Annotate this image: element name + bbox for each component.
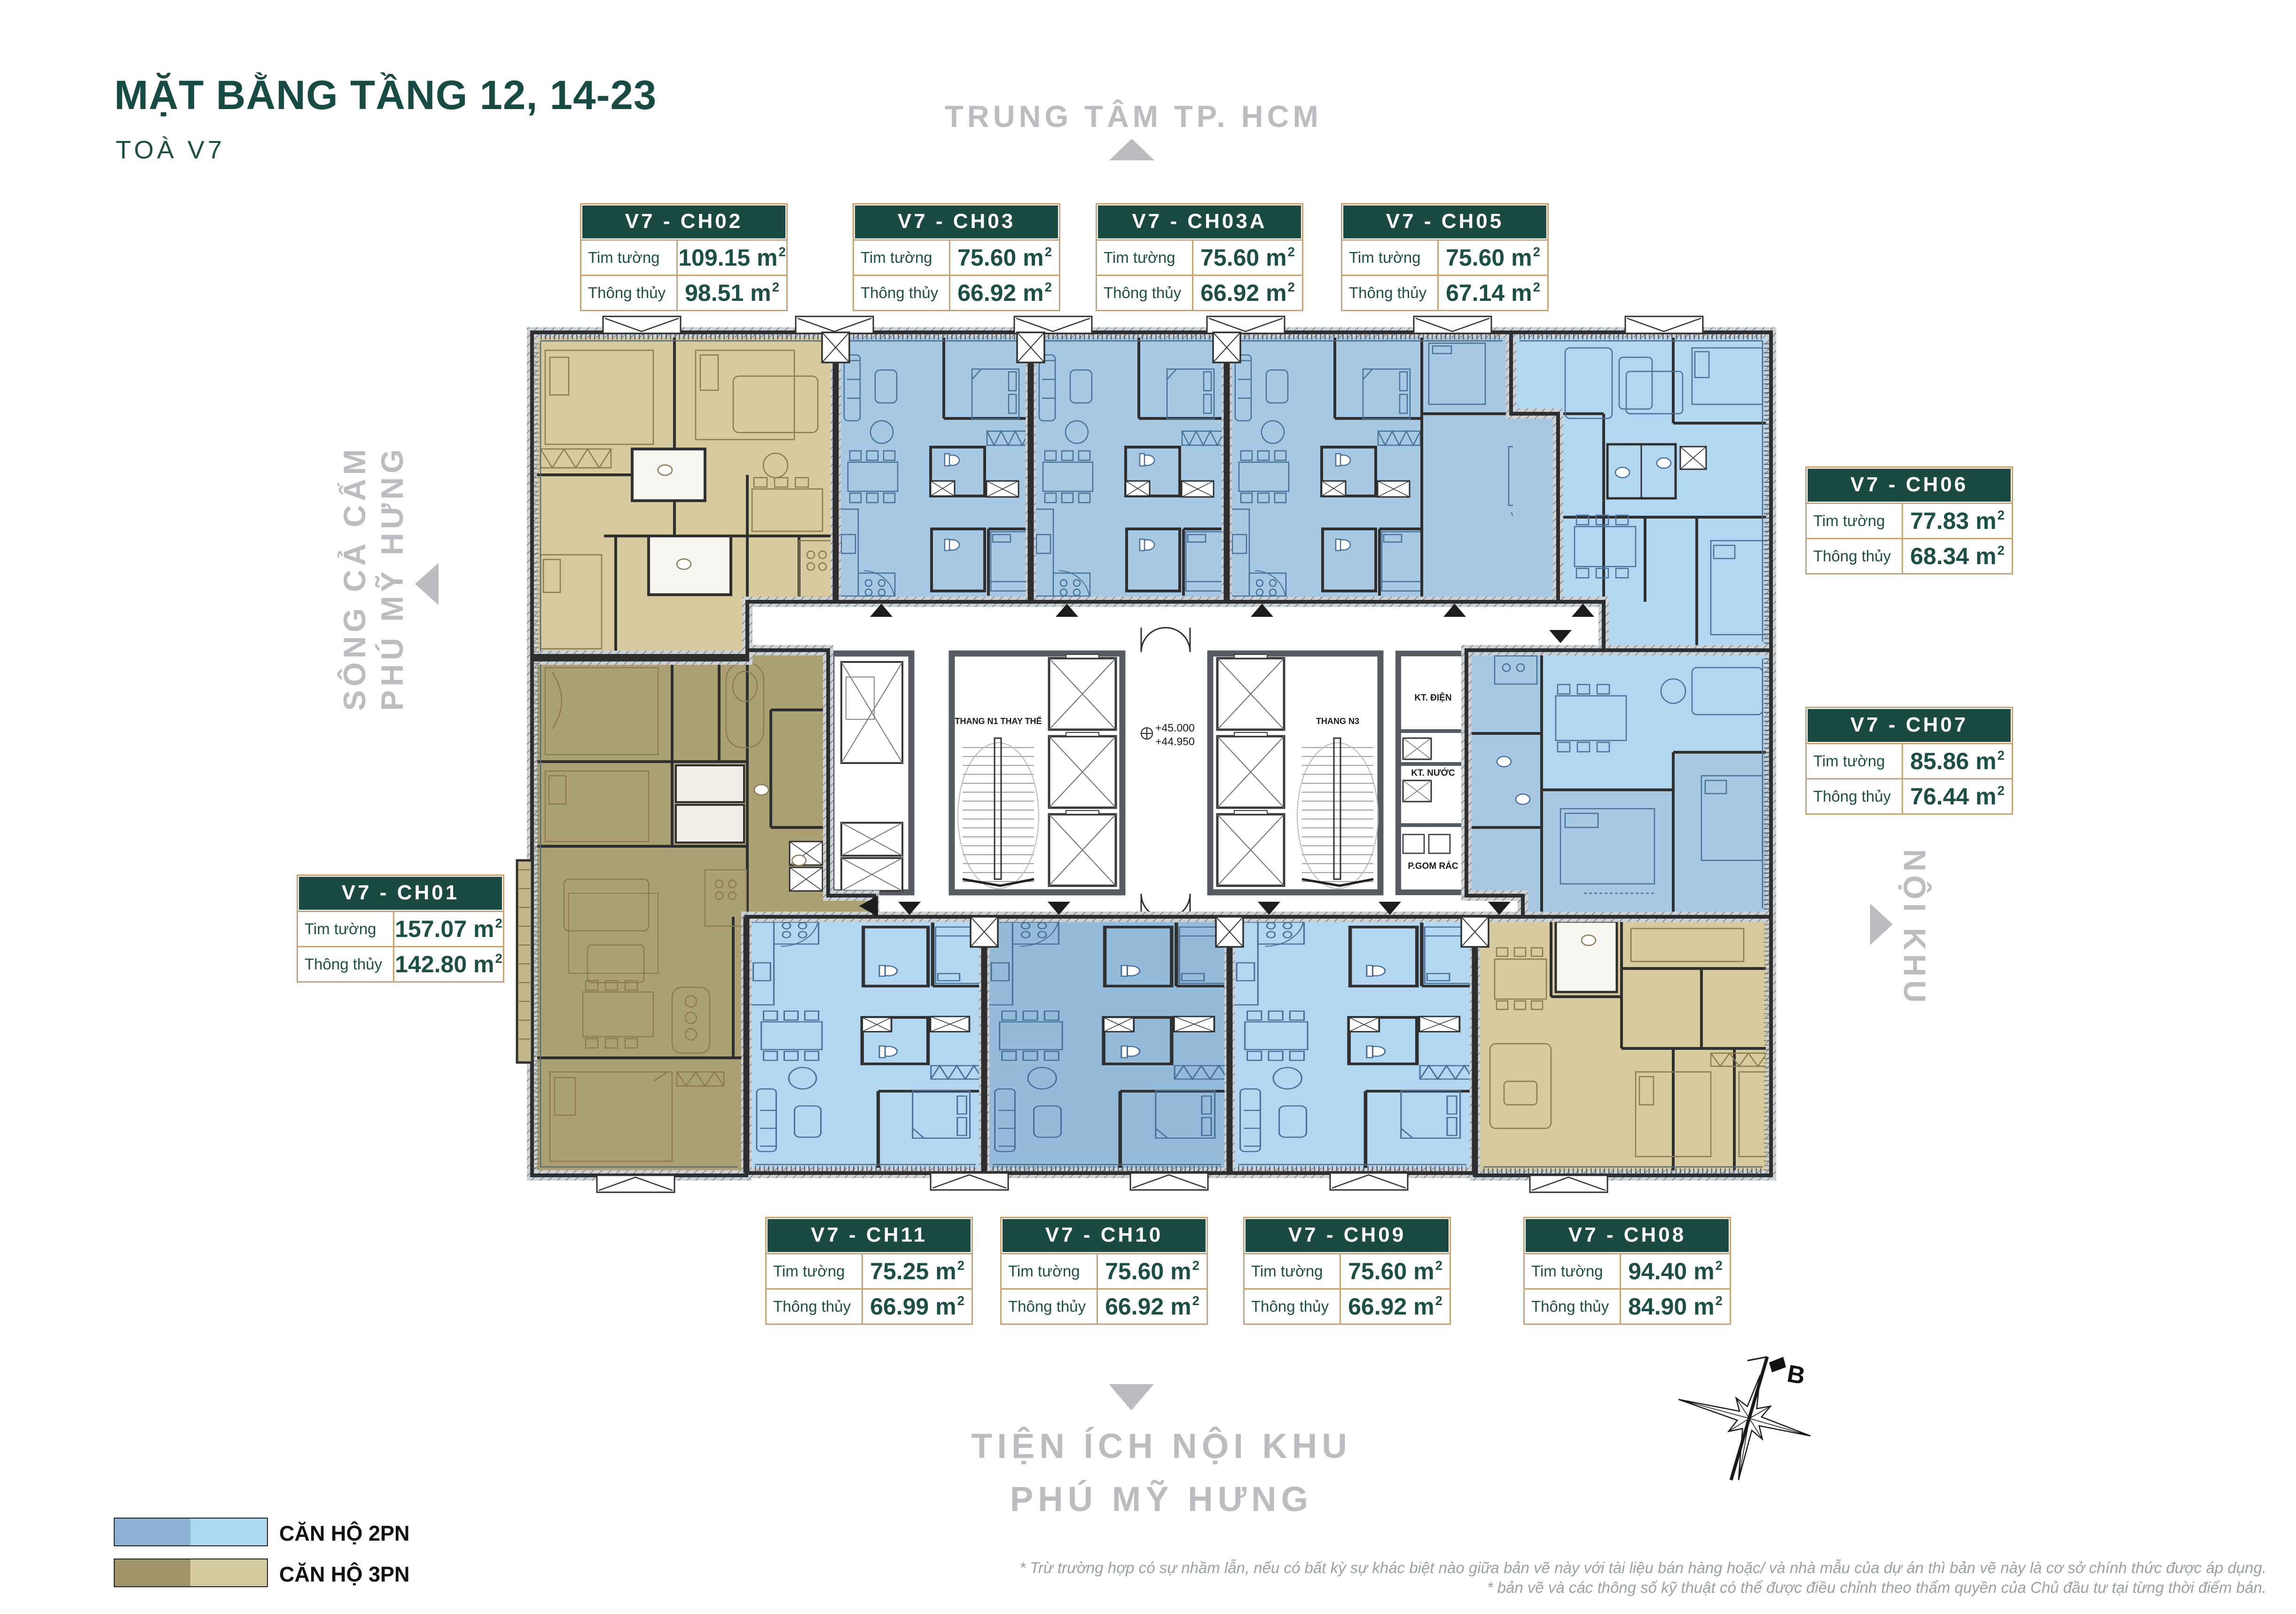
svg-text:THANG N3: THANG N3 (1316, 716, 1359, 726)
svg-text:THANG N1 THAY THẾ: THANG N1 THAY THẾ (955, 716, 1042, 726)
svg-text:P.GOM RÁC: P.GOM RÁC (1408, 861, 1458, 871)
svg-text:KT. NƯỚC: KT. NƯỚC (1411, 768, 1455, 778)
svg-text:+44.950: +44.950 (1155, 735, 1195, 748)
svg-text:B: B (1785, 1360, 1807, 1390)
svg-text:KT. ĐIỆN: KT. ĐIỆN (1414, 693, 1451, 703)
svg-text:+45.000: +45.000 (1155, 722, 1195, 734)
